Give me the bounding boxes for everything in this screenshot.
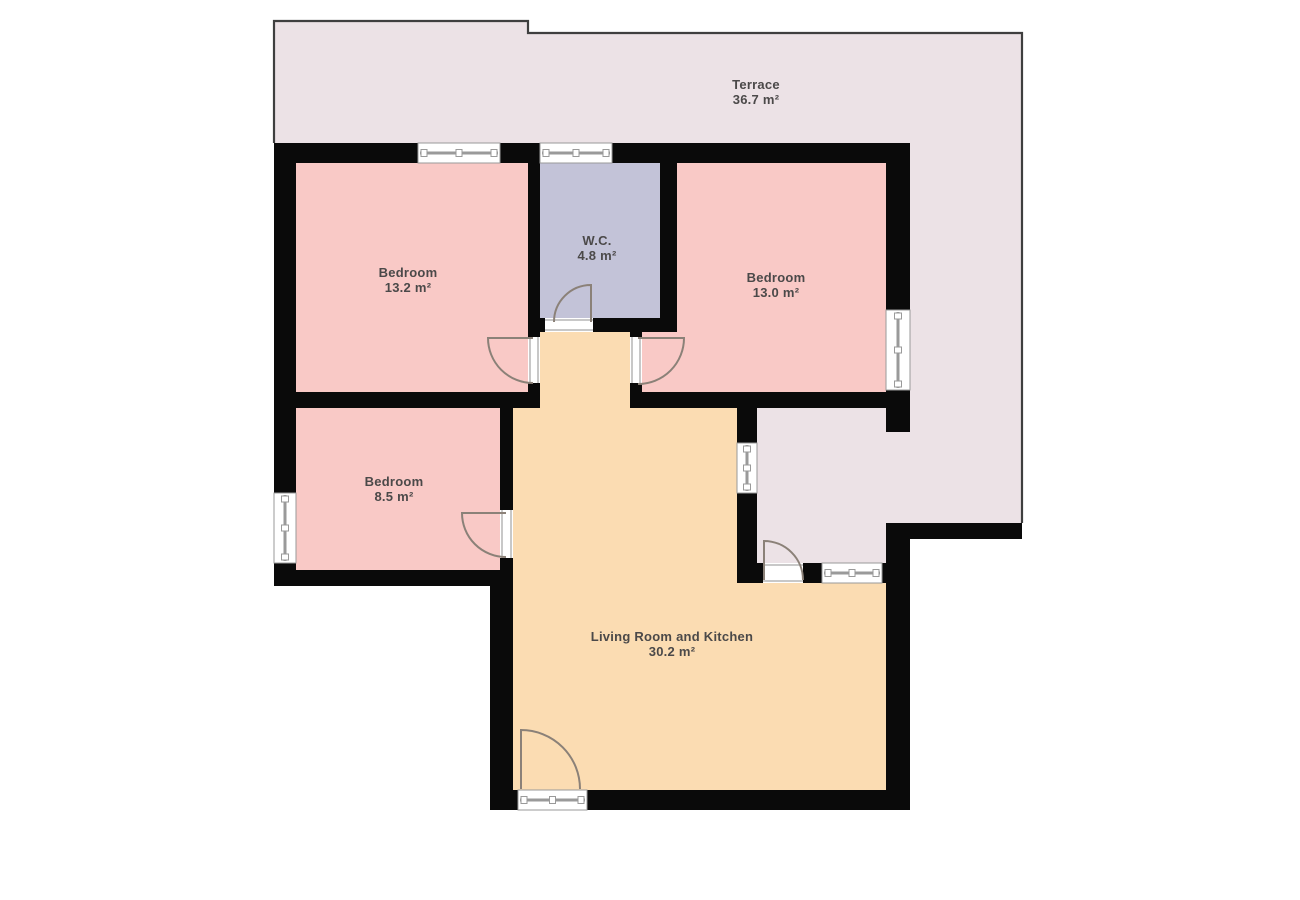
room-label-living-room-kitchen: Living Room and Kitchen: [591, 629, 753, 644]
window-tick: [744, 484, 751, 490]
room-terrace: [274, 21, 528, 143]
wall: [630, 392, 910, 408]
wall: [490, 570, 513, 810]
floorplan-page: Terrace36.7 m²Bedroom13.2 m²W.C.4.8 m²Be…: [0, 0, 1300, 900]
room-terrace: [757, 408, 888, 563]
window-tick: [282, 554, 289, 560]
window-tick: [578, 797, 584, 804]
window-tick: [825, 570, 831, 577]
door-threshold: [763, 563, 803, 583]
window-tick: [895, 347, 902, 353]
window-tick: [282, 496, 289, 502]
room-living-room-kitchen: [513, 408, 742, 586]
room-living-room-kitchen: [513, 578, 886, 790]
room-label-wc: W.C.: [582, 233, 611, 248]
window-tick: [521, 797, 527, 804]
room-area-bedroom-3: 8.5 m²: [374, 489, 413, 504]
room-label-terrace: Terrace: [732, 77, 780, 92]
room-area-wc: 4.8 m²: [577, 248, 616, 263]
floorplan-svg: Terrace36.7 m²Bedroom13.2 m²W.C.4.8 m²Be…: [0, 0, 1300, 900]
window-tick: [421, 150, 427, 157]
window-tick: [573, 150, 579, 157]
window-tick: [744, 446, 751, 452]
window-tick: [849, 570, 855, 577]
window-tick: [873, 570, 879, 577]
window-tick: [744, 465, 751, 471]
room-label-bedroom-3: Bedroom: [365, 474, 424, 489]
window-tick: [282, 525, 289, 531]
wall: [660, 143, 677, 332]
room-living-room-kitchen: [534, 328, 636, 412]
window-tick: [895, 381, 902, 387]
room-label-bedroom-1: Bedroom: [379, 265, 438, 280]
wall: [528, 163, 540, 332]
window-tick: [895, 313, 902, 319]
room-terrace: [910, 143, 1022, 523]
window-tick: [543, 150, 549, 157]
room-label-bedroom-2: Bedroom: [747, 270, 806, 285]
wall: [886, 523, 1022, 539]
room-area-living-room-kitchen: 30.2 m²: [649, 644, 696, 659]
room-area-bedroom-2: 13.0 m²: [753, 285, 800, 300]
wall: [274, 392, 540, 408]
wall: [274, 570, 513, 586]
window-tick: [456, 150, 462, 157]
room-area-terrace: 36.7 m²: [733, 92, 780, 107]
window-tick: [491, 150, 497, 157]
room-area-bedroom-1: 13.2 m²: [385, 280, 432, 295]
room-terrace: [888, 432, 910, 523]
window-tick: [603, 150, 609, 157]
wall: [737, 408, 757, 583]
window-tick: [550, 797, 556, 804]
